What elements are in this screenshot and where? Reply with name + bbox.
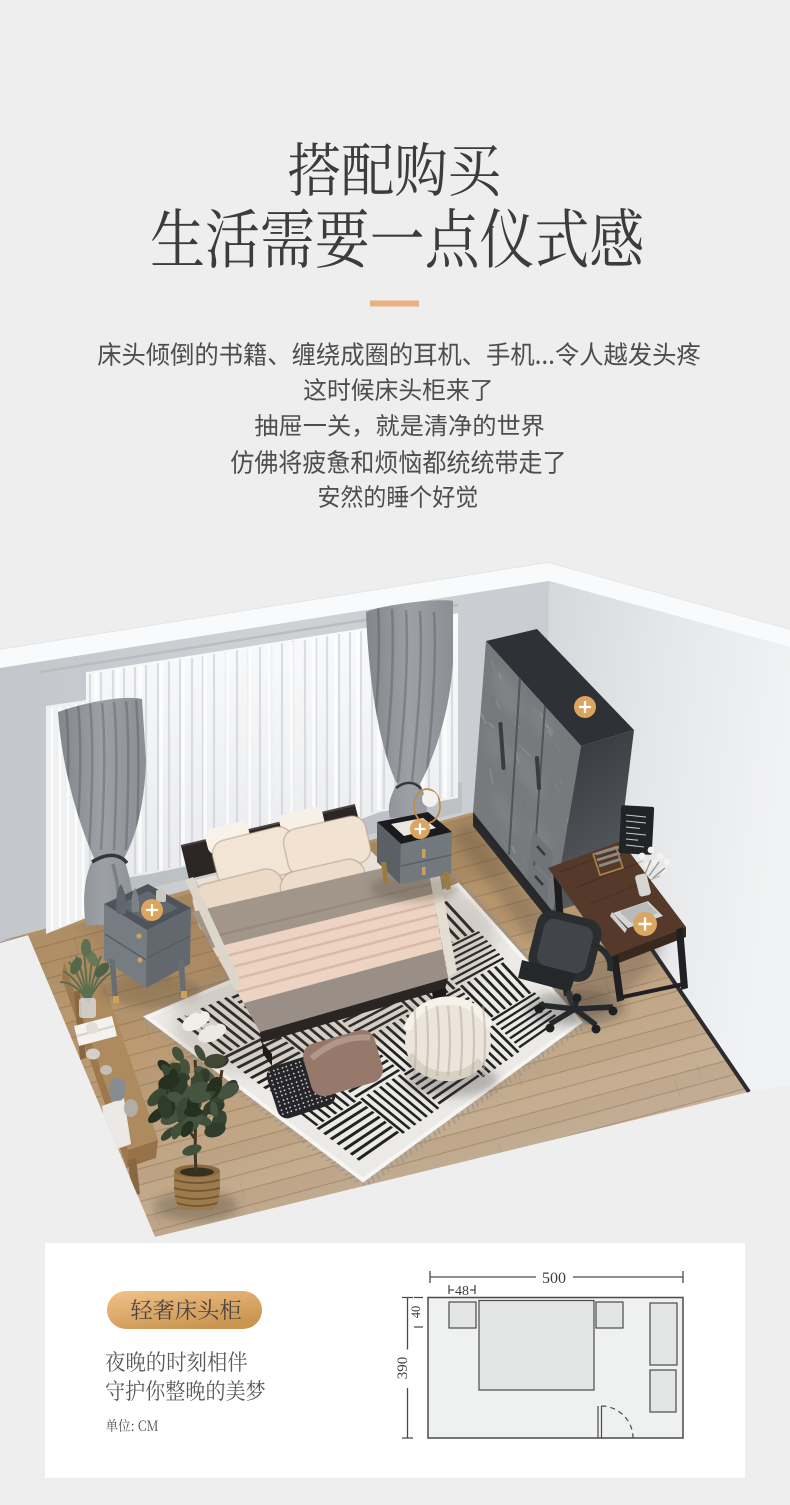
svg-text:40: 40 — [409, 1306, 423, 1319]
svg-text:390: 390 — [395, 1357, 411, 1380]
svg-text:48: 48 — [455, 1284, 469, 1299]
svg-text:500: 500 — [542, 1270, 566, 1287]
